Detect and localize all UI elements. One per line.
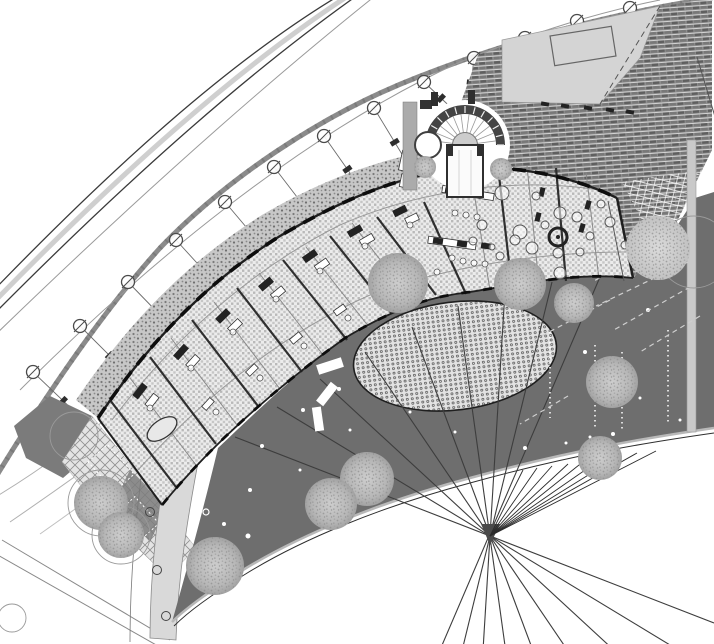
- fixture-circle: [449, 255, 455, 261]
- terrace-table: [605, 217, 615, 227]
- plaza-light-dot: [299, 469, 302, 472]
- fixture-circle: [188, 365, 194, 371]
- entrance-post-left: [420, 100, 432, 109]
- tree-foliage-texture: [494, 258, 546, 310]
- plaza-light-dot: [679, 419, 682, 422]
- tree-foliage-texture: [586, 356, 638, 408]
- fixture-circle: [474, 214, 480, 220]
- fixture-circle: [471, 260, 477, 266]
- terrace-table: [496, 252, 504, 260]
- fixture-circle: [460, 258, 466, 264]
- tree-foliage-texture: [490, 158, 512, 180]
- terrace-table: [526, 242, 538, 254]
- target-table-center: [556, 235, 560, 239]
- plaza-light-dot: [409, 411, 412, 414]
- fixture-circle: [345, 315, 351, 321]
- tree-foliage-texture: [578, 436, 622, 480]
- fixture-circle: [407, 222, 413, 228]
- tree-foliage-texture: [626, 216, 690, 280]
- terrace-table: [477, 220, 487, 230]
- stair-post-left: [431, 92, 438, 106]
- plaza-light-dot: [349, 429, 352, 432]
- east-edge-strip: [687, 140, 696, 432]
- fixture-circle: [482, 261, 488, 267]
- plaza-light-dot: [547, 465, 550, 468]
- fixture-circle: [147, 405, 153, 411]
- tree-foliage-texture: [305, 478, 357, 530]
- tree-foliage-texture: [186, 537, 244, 595]
- terrace-table: [576, 248, 584, 256]
- fixture-circle: [452, 210, 458, 216]
- terrace-table: [469, 237, 477, 245]
- plaza-light-dot: [248, 488, 252, 492]
- terrace-table: [554, 267, 566, 279]
- fixture-circle: [434, 269, 440, 275]
- tree-foliage-texture: [98, 512, 144, 558]
- tree-foliage-texture: [414, 156, 436, 178]
- terrace-table: [586, 232, 594, 240]
- plaza-light-dot: [260, 444, 264, 448]
- terrace-table: [489, 244, 495, 250]
- plaza-light-dot: [454, 431, 457, 434]
- plaza-light-dot: [639, 397, 642, 400]
- terrace-table: [541, 221, 549, 229]
- stair-post-right: [468, 90, 475, 104]
- terrace-table: [510, 235, 520, 245]
- plaza-light-dot: [565, 442, 568, 445]
- fixture-circle: [230, 329, 236, 335]
- plaza-light-dot: [523, 446, 527, 450]
- fixture-circle: [301, 343, 307, 349]
- plaza-light-dot: [301, 408, 305, 412]
- terrace-table: [597, 200, 605, 208]
- terrace-table: [495, 186, 509, 200]
- site-plan-canvas: [0, 0, 714, 644]
- fixture-circle: [213, 409, 219, 415]
- terrace-table: [532, 192, 540, 200]
- fixture-circle: [257, 375, 263, 381]
- fixture-circle: [273, 296, 279, 302]
- terrace-table: [554, 207, 566, 219]
- fixture-circle: [317, 268, 323, 274]
- fixture-circle: [362, 243, 368, 249]
- plaza-light-dot: [583, 350, 587, 354]
- elevator-cab-circle: [415, 132, 441, 158]
- tree-foliage-texture: [368, 253, 428, 313]
- plaza-light-dot: [478, 486, 482, 490]
- fixture-circle: [463, 212, 469, 218]
- terrace-table: [553, 248, 563, 258]
- shaft-corner-right: [477, 145, 483, 156]
- tree-foliage-texture: [554, 283, 594, 323]
- plaza-light-dot: [246, 534, 251, 539]
- terrace-table: [572, 212, 582, 222]
- site-plan-page: [0, 0, 714, 644]
- shaft-corner-left: [447, 145, 453, 156]
- plaza-light-dot: [222, 522, 226, 526]
- plaza-light-dot: [611, 432, 615, 436]
